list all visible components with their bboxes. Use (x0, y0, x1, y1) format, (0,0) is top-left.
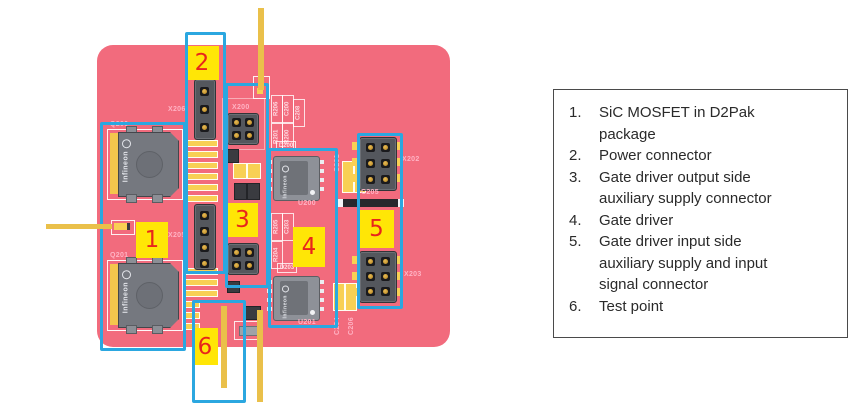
legend-num: 4. (569, 210, 599, 232)
legend-num: 3. (569, 167, 599, 210)
trace-top (258, 8, 264, 90)
legend-num: 6. (569, 296, 599, 318)
legend-item-6: 6. Test point (569, 296, 847, 318)
legend-text: Power connector (599, 145, 799, 167)
pad-bar (183, 279, 218, 286)
region-2-power-connector (185, 32, 226, 274)
trace-left (46, 224, 112, 229)
legend-text: Gate driver (599, 210, 799, 232)
legend-num: 1. (569, 102, 599, 145)
legend-box: 1. SiC MOSFET in D2Pak package 2. Power … (553, 89, 848, 338)
legend-item-2: 2. Power connector (569, 145, 847, 167)
region-6-test-point (192, 300, 246, 403)
legend-item-3: 3. Gate driver output side auxiliary sup… (569, 167, 847, 210)
region-1-mosfets (100, 122, 186, 351)
legend-item-5: 5. Gate driver input side auxiliary supp… (569, 231, 847, 296)
legend-item-4: 4. Gate driver (569, 210, 847, 232)
designator-c206: C206 (348, 311, 356, 335)
legend-text: Gate driver output side auxiliary supply… (599, 167, 799, 210)
pad-bar (183, 290, 218, 297)
legend-text: SiC MOSFET in D2Pak package (599, 102, 799, 145)
legend-text: Gate driver input side auxiliary supply … (599, 231, 799, 296)
trace-testpoint-right (257, 310, 263, 402)
trace-testpoint-left (221, 306, 227, 388)
designator-x202: X202 (402, 156, 420, 164)
designator-x206: X206 (168, 106, 186, 114)
figure-canvas: Q200 Infineon Q201 Infineon X206 X205 (0, 0, 854, 404)
designator-c208: C208 (293, 99, 305, 127)
region-5-input-aux-connector (357, 133, 403, 309)
legend-num: 2. (569, 145, 599, 167)
designator-x203: X203 (404, 271, 422, 279)
region-3-output-aux-connector (225, 83, 269, 288)
legend-item-1: 1. SiC MOSFET in D2Pak package (569, 102, 847, 145)
legend-num: 5. (569, 231, 599, 296)
region-4-gate-driver (268, 148, 338, 328)
legend-text: Test point (599, 296, 799, 318)
